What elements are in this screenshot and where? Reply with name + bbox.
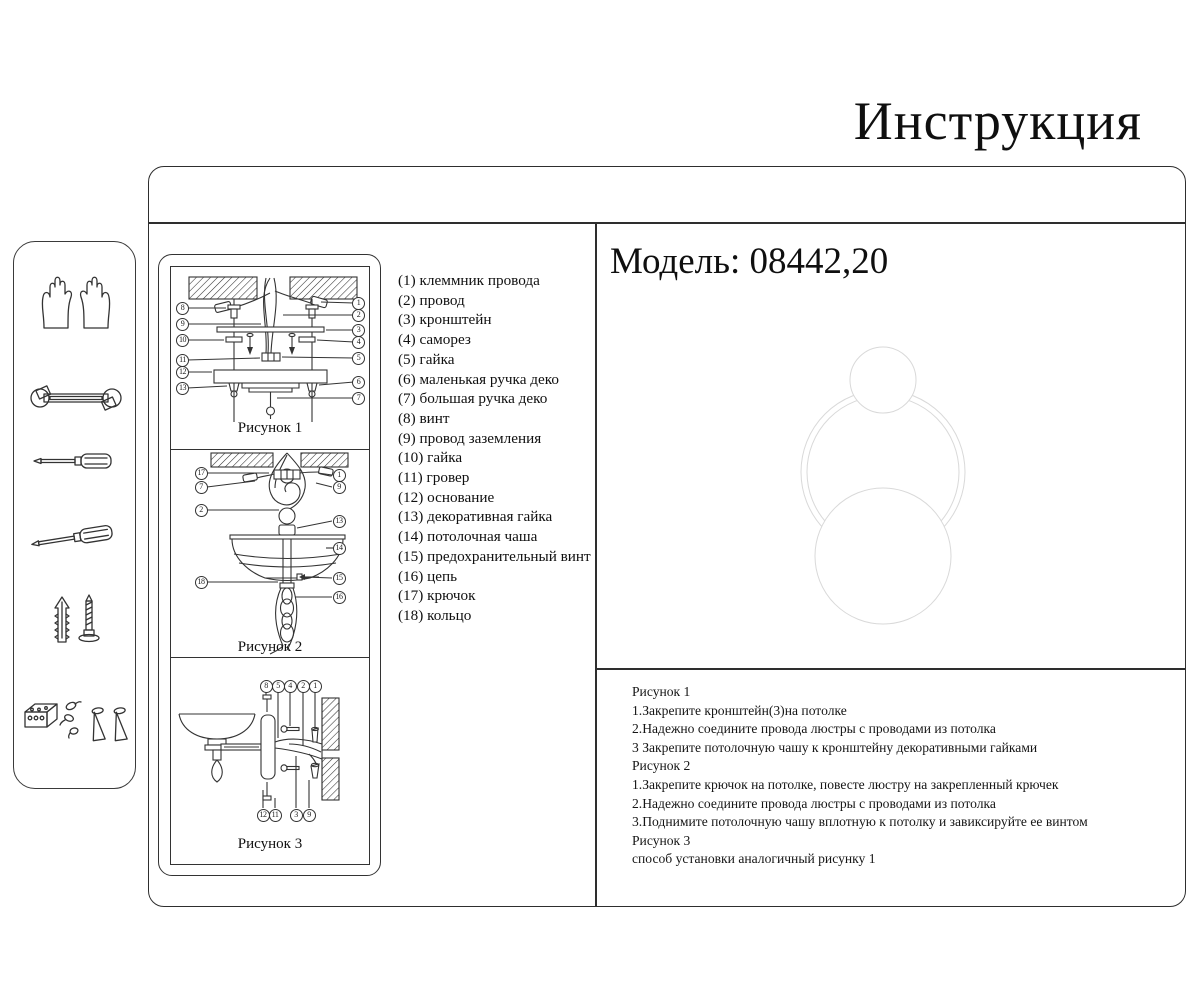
instruction-line: Рисунок 3 (632, 832, 1177, 851)
callout: 18 (195, 576, 208, 589)
callout: 5 (272, 680, 285, 693)
callout: 9 (303, 809, 316, 822)
part-item: (6) маленькая ручка деко (398, 370, 594, 390)
part-item: (11) гровер (398, 468, 594, 488)
callout: 9 (176, 318, 189, 331)
part-item: (4) саморез (398, 330, 594, 350)
callout: 2 (297, 680, 310, 693)
figure-1-caption: Рисунок 1 (171, 420, 369, 437)
part-item: (15) предохранительный винт (398, 547, 594, 567)
callout: 15 (333, 572, 346, 585)
page-title: Инструкция (854, 90, 1142, 152)
instruction-line: Рисунок 1 (632, 683, 1177, 702)
callout: 10 (176, 334, 189, 347)
callout: 7 (195, 481, 208, 494)
callout: 2 (352, 309, 365, 322)
callout: 6 (352, 376, 365, 389)
part-item: (10) гайка (398, 448, 594, 468)
figure-2-hook-mount: 17 7 2 18 1 9 13 14 15 16 Рисунок 2 (171, 449, 369, 657)
callout: 1 (352, 297, 365, 310)
tools-sidebar (13, 241, 136, 789)
figures-panel-inner: 8 9 10 11 12 13 1 2 3 4 5 6 7 Рисунок 1 (170, 266, 370, 865)
figure-3-wall-mount: 8 5 4 2 1 12 11 3 9 Рисунок 3 (171, 657, 369, 862)
instruction-line: 3 Закрепите потолочную чашу к кронштейну… (632, 739, 1177, 758)
part-item: (3) кронштейн (398, 310, 594, 330)
callout: 14 (333, 542, 346, 555)
instruction-line: 2.Надежно соедините провода люстры с про… (632, 795, 1177, 814)
callout: 4 (352, 336, 365, 349)
part-item: (13) декоративная гайка (398, 507, 594, 527)
instruction-sheet: Инструкция (0, 0, 1200, 999)
top-band-divider (149, 222, 1185, 224)
callout: 3 (290, 809, 303, 822)
part-item: (5) гайка (398, 350, 594, 370)
callout: 1 (309, 680, 322, 693)
callout: 11 (176, 354, 189, 367)
screwdriver-flat-icon (33, 450, 113, 472)
wall-plug-and-screw-icon (48, 594, 104, 648)
callout: 12 (257, 809, 270, 822)
part-item: (1) клеммник провода (398, 271, 594, 291)
instruction-line: способ установки аналогичный рисунку 1 (632, 850, 1177, 869)
callout: 11 (269, 809, 282, 822)
callout: 16 (333, 591, 346, 604)
lamp-watermark (770, 330, 1000, 635)
gloves-icon (32, 270, 120, 332)
callout: 13 (176, 382, 189, 395)
callout: 9 (333, 481, 346, 494)
instruction-line: 3.Поднимите потолочную чашу вплотную к п… (632, 813, 1177, 832)
part-item: (12) основание (398, 488, 594, 508)
callout: 4 (284, 680, 297, 693)
assembly-instructions: Рисунок 1 1.Закрепите кронштейн(3)на пот… (632, 683, 1177, 869)
callout: 13 (333, 515, 346, 528)
model-number: Модель: 08442,20 (610, 240, 888, 283)
callout: 1 (333, 469, 346, 482)
figure-3-caption: Рисунок 3 (171, 836, 369, 853)
part-item: (18) кольцо (398, 606, 594, 626)
part-item: (9) провод заземления (398, 429, 594, 449)
parts-list: (1) клеммник провода (2) провод (3) крон… (398, 271, 594, 626)
part-item: (8) винт (398, 409, 594, 429)
callout: 3 (352, 324, 365, 337)
instructions-divider (595, 668, 1185, 670)
callout: 2 (195, 504, 208, 517)
callout: 12 (176, 366, 189, 379)
callout: 17 (195, 467, 208, 480)
callout: 8 (260, 680, 273, 693)
callout: 7 (352, 392, 365, 405)
instruction-line: 1.Закрепите кронштейн(3)на потолке (632, 702, 1177, 721)
wrench-icon (29, 382, 123, 414)
terminal-block-and-anchors-icon (21, 694, 131, 746)
part-item: (16) цепь (398, 567, 594, 587)
part-item: (7) большая ручка деко (398, 389, 594, 409)
instruction-line: Рисунок 2 (632, 757, 1177, 776)
part-item: (14) потолочная чаша (398, 527, 594, 547)
instruction-line: 2.Надежно соедините провода люстры с про… (632, 720, 1177, 739)
part-item: (2) провод (398, 291, 594, 311)
figure-1-bracket-mount: 8 9 10 11 12 13 1 2 3 4 5 6 7 Рисунок 1 (171, 267, 369, 449)
part-item: (17) крючок (398, 586, 594, 606)
figure-2-caption: Рисунок 2 (171, 639, 369, 656)
column-divider (595, 222, 597, 906)
screwdriver-tilted-icon (28, 514, 116, 552)
callout: 5 (352, 352, 365, 365)
instruction-line: 1.Закрепите крючок на потолке, повесте л… (632, 776, 1177, 795)
callout: 8 (176, 302, 189, 315)
